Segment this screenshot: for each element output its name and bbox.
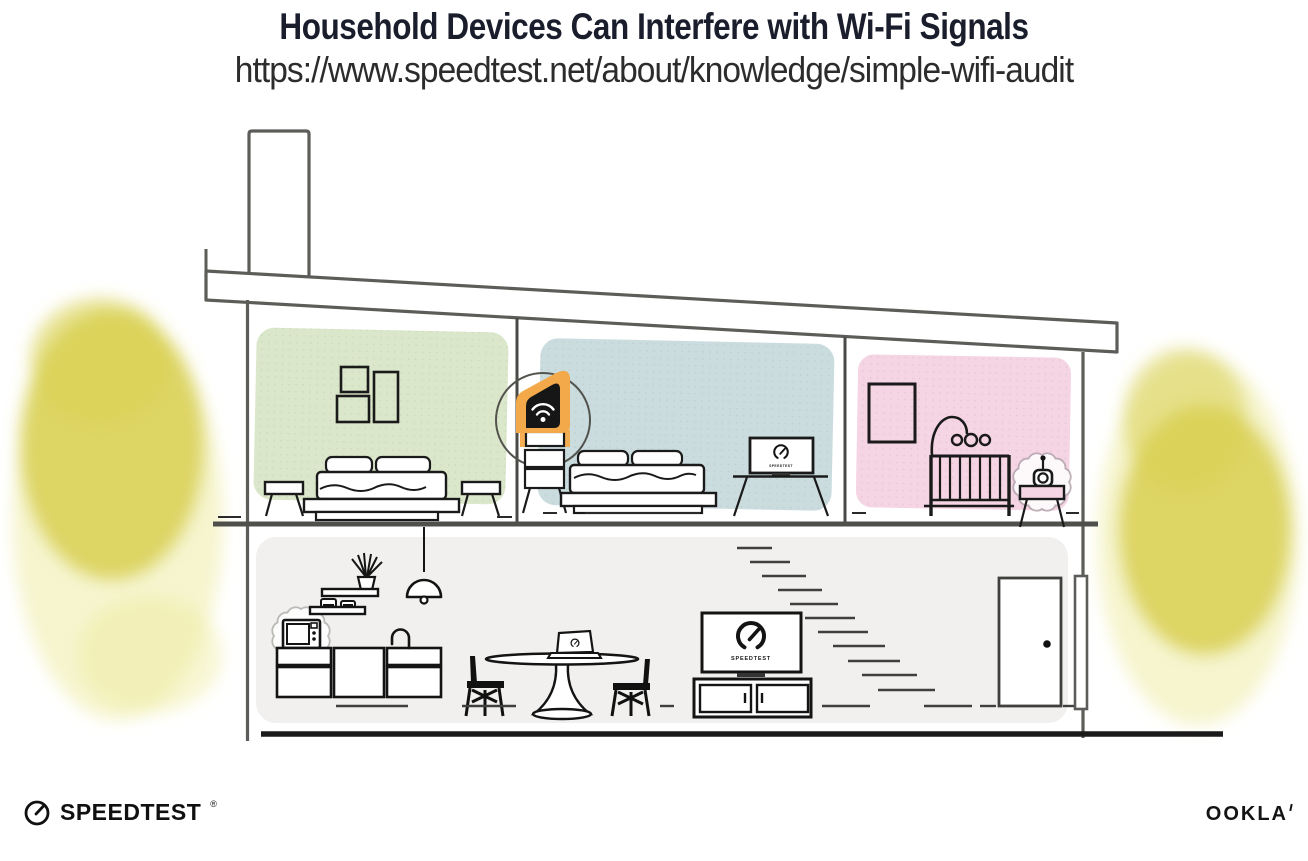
pillow bbox=[376, 457, 430, 473]
tv-stand bbox=[737, 673, 765, 677]
pillow bbox=[578, 451, 628, 466]
downspout bbox=[1075, 576, 1087, 709]
right-tree bbox=[1098, 348, 1298, 725]
page-title: Household Devices Can Interfere with Wi-… bbox=[98, 6, 1210, 48]
speedtest-gauge-icon bbox=[22, 797, 52, 827]
left-tree bbox=[13, 298, 223, 720]
speedtest-wordmark: SPEEDTEST bbox=[60, 799, 201, 826]
house-illustration: SPEEDTEST bbox=[0, 0, 1308, 861]
mattress bbox=[570, 465, 704, 493]
console-door bbox=[700, 685, 751, 712]
bed-platform bbox=[561, 493, 716, 506]
speedtest-logo: SPEEDTEST ® bbox=[22, 797, 216, 827]
console-door bbox=[757, 685, 808, 712]
pillow bbox=[326, 457, 372, 473]
entry-door bbox=[999, 578, 1061, 706]
table-base bbox=[533, 709, 591, 719]
left-tree-wash bbox=[78, 597, 222, 713]
bed-base bbox=[316, 512, 438, 520]
media-console bbox=[694, 679, 811, 717]
infographic-root: SPEEDTEST bbox=[0, 0, 1308, 861]
kitchen-cabinets bbox=[277, 648, 441, 697]
crib-bars bbox=[940, 456, 1000, 500]
pillow bbox=[632, 451, 682, 466]
dresser-drawer bbox=[526, 432, 564, 446]
source-url: https://www.speedtest.net/about/knowledg… bbox=[46, 49, 1262, 91]
bed-base bbox=[574, 506, 702, 513]
house-structure bbox=[206, 131, 1117, 352]
living-room: SPEEDTEST bbox=[694, 613, 811, 717]
living-room-tv-label: SPEEDTEST bbox=[731, 656, 771, 662]
left-tree-top bbox=[30, 298, 170, 422]
dresser-drawer bbox=[525, 450, 564, 467]
dresser-leg bbox=[523, 488, 530, 513]
right-tree-top bbox=[1123, 348, 1247, 492]
bed-platform bbox=[304, 499, 459, 512]
microwave bbox=[283, 620, 320, 648]
shelf bbox=[322, 589, 378, 596]
door bbox=[999, 578, 1061, 706]
door-knob bbox=[1043, 640, 1051, 648]
monitor-antenna-tip bbox=[1040, 455, 1045, 460]
header: Household Devices Can Interfere with Wi-… bbox=[0, 6, 1308, 91]
bedroom-tv-label: SPEEDTEST bbox=[769, 464, 793, 468]
baby-monitor-table bbox=[1013, 453, 1070, 527]
dresser-drawer bbox=[525, 469, 564, 488]
shelf bbox=[310, 607, 365, 614]
registered-mark-icon: ® bbox=[210, 799, 217, 809]
monitor-table-top bbox=[1020, 486, 1064, 499]
ookla-logo: OOKLA bbox=[1206, 803, 1292, 826]
ookla-wordmark: OOKLA bbox=[1206, 803, 1288, 826]
